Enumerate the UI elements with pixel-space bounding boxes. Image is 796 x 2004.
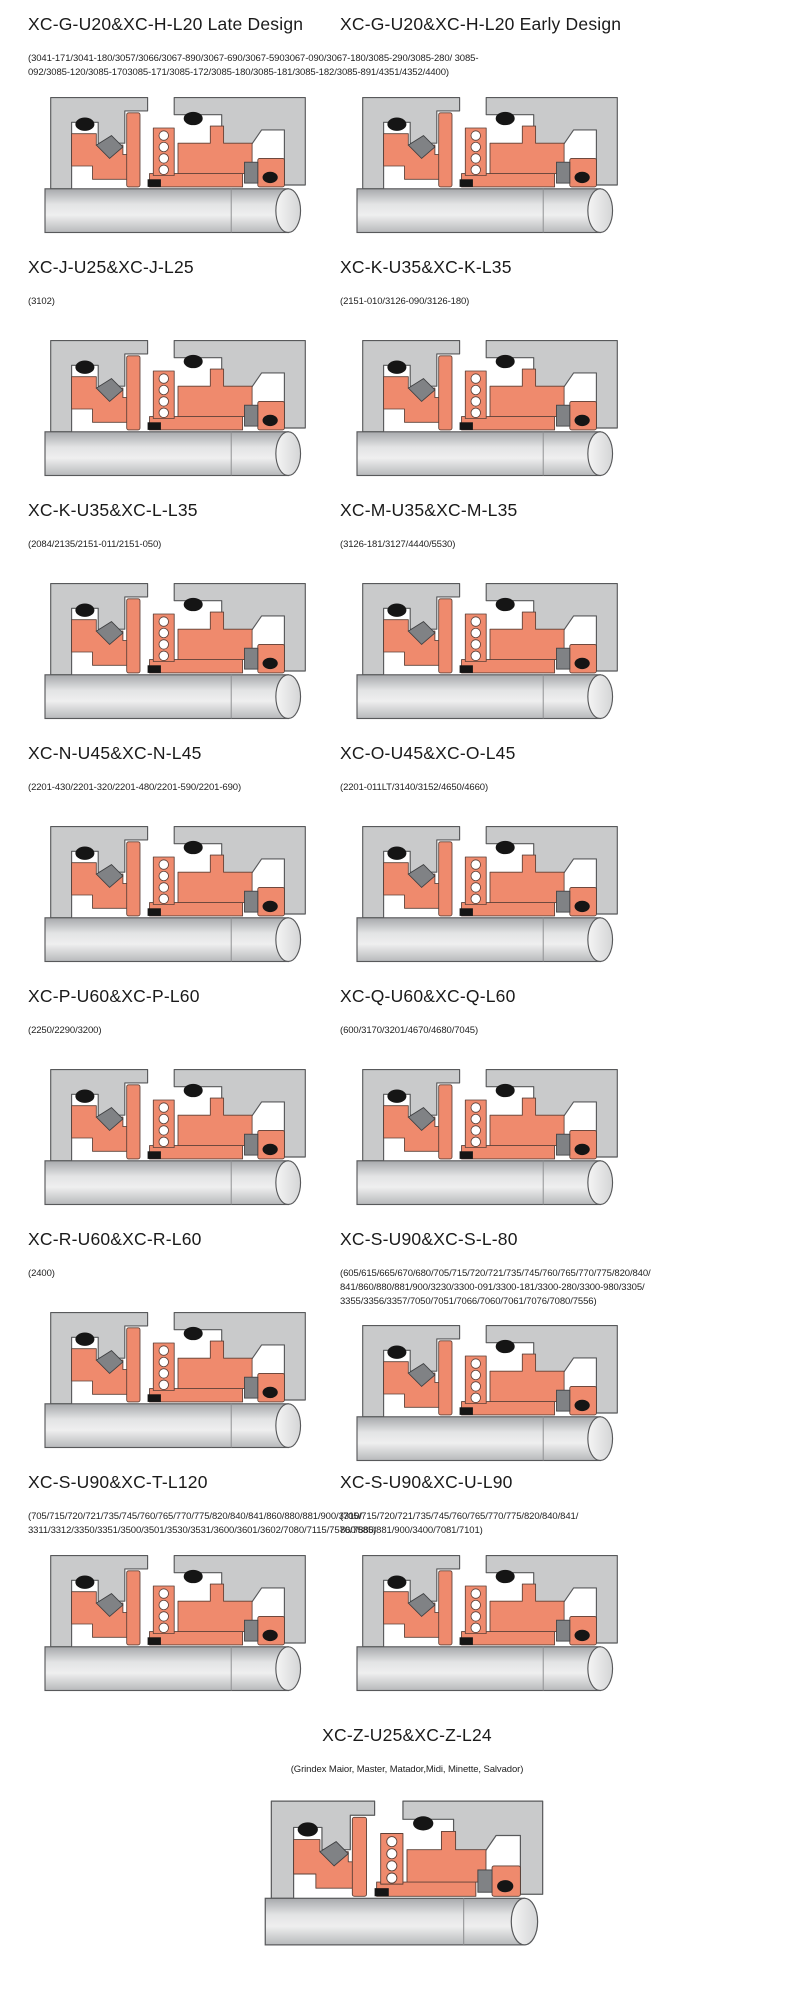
seal-section-g-h-late: XC-G-U20&XC-H-L20 Late Design (3041-171/…: [28, 14, 340, 257]
mechanical-seal-cross-section-diagram: [34, 333, 322, 485]
seal-section-k: XC-K-U35&XC-K-L35 (2151-010/3126-090/312…: [340, 257, 786, 500]
seal-title: XC-G-U20&XC-H-L20 Late Design: [28, 14, 340, 35]
seal-part-numbers: (3102): [28, 295, 340, 323]
seal-section-j: XC-J-U25&XC-J-L25 (3102): [28, 257, 340, 500]
seal-title: XC-S-U90&XC-S-L-80: [340, 1229, 786, 1250]
seal-section-t-l120: XC-S-U90&XC-T-L120 (705/715/720/721/735/…: [28, 1472, 340, 1715]
seal-title: XC-M-U35&XC-M-L35: [340, 500, 786, 521]
seal-section-g-h-early: XC-G-U20&XC-H-L20 Early Design: [340, 14, 786, 257]
seal-part-numbers: (2201-011LT/3140/3152/4650/4660): [340, 781, 685, 809]
mechanical-seal-cross-section-diagram: [255, 1793, 559, 1955]
seal-title: XC-P-U60&XC-P-L60: [28, 986, 340, 1007]
mechanical-seal-cross-section-diagram: [34, 1062, 322, 1214]
seal-section-z: XC-Z-U25&XC-Z-L24 (Grindex Maior, Master…: [28, 1715, 786, 1955]
seal-title: XC-N-U45&XC-N-L45: [28, 743, 340, 764]
mechanical-seal-cross-section-diagram: [346, 333, 634, 485]
seal-title: XC-S-U90&XC-T-L120: [28, 1472, 340, 1493]
seal-title: XC-Q-U60&XC-Q-L60: [340, 986, 786, 1007]
seal-part-numbers: (2250/2290/3200): [28, 1024, 340, 1052]
mechanical-seal-cross-section-diagram: [346, 1318, 634, 1470]
seal-part-numbers: (2201-430/2201-320/2201-480/2201-590/220…: [28, 781, 340, 809]
mechanical-seal-cross-section-diagram: [346, 819, 634, 971]
seal-part-numbers: (3041-171/3041-180/3057/3066/3067-890/30…: [28, 52, 484, 80]
seal-part-numbers: (2084/2135/2151-011/2151-050): [28, 538, 340, 566]
seal-part-numbers: (705/715/720/721/735/745/760/765/770/775…: [28, 1510, 430, 1538]
seal-section-n: XC-N-U45&XC-N-L45 (2201-430/2201-320/220…: [28, 743, 340, 986]
seal-title: XC-J-U25&XC-J-L25: [28, 257, 340, 278]
seal-catalog-page: XC-G-U20&XC-H-L20 Late Design (3041-171/…: [0, 0, 796, 1979]
mechanical-seal-cross-section-diagram: [34, 576, 322, 728]
mechanical-seal-cross-section-diagram: [346, 576, 634, 728]
seal-section-s-l80: XC-S-U90&XC-S-L-80 (605/615/665/670/680/…: [340, 1229, 786, 1472]
seal-section-m: XC-M-U35&XC-M-L35 (3126-181/3127/4440/55…: [340, 500, 786, 743]
seal-part-numbers: (605/615/665/670/680/705/715/720/721/735…: [340, 1267, 685, 1308]
seal-title: XC-G-U20&XC-H-L20 Early Design: [340, 14, 786, 35]
seal-section-q: XC-Q-U60&XC-Q-L60 (600/3170/3201/4670/46…: [340, 986, 786, 1229]
mechanical-seal-cross-section-diagram: [34, 819, 322, 971]
seal-part-numbers: (2400): [28, 1267, 340, 1295]
mechanical-seal-cross-section-diagram: [34, 1548, 322, 1700]
mechanical-seal-cross-section-diagram: [34, 1305, 322, 1457]
seal-title: XC-K-U35&XC-L-L35: [28, 500, 340, 521]
seal-title: XC-Z-U25&XC-Z-L24: [28, 1725, 786, 1746]
mechanical-seal-cross-section-diagram: [346, 1548, 634, 1700]
seal-title: XC-R-U60&XC-R-L60: [28, 1229, 340, 1250]
seal-section-r: XC-R-U60&XC-R-L60 (2400): [28, 1229, 340, 1472]
seal-section-o: XC-O-U45&XC-O-L45 (2201-011LT/3140/3152/…: [340, 743, 786, 986]
seal-part-numbers: (2151-010/3126-090/3126-180): [340, 295, 685, 323]
seal-title: XC-K-U35&XC-K-L35: [340, 257, 786, 278]
seal-section-k-l: XC-K-U35&XC-L-L35 (2084/2135/2151-011/21…: [28, 500, 340, 743]
seal-title: XC-O-U45&XC-O-L45: [340, 743, 786, 764]
seal-section-u-l90: XC-S-U90&XC-U-L90 (705/715/720/721/735/7…: [340, 1472, 786, 1715]
mechanical-seal-cross-section-diagram: [346, 90, 634, 242]
seal-part-numbers: (Grindex Maior, Master, Matador,Midi, Mi…: [28, 1763, 786, 1779]
seal-title: XC-S-U90&XC-U-L90: [340, 1472, 786, 1493]
mechanical-seal-cross-section-diagram: [34, 90, 322, 242]
seal-section-p: XC-P-U60&XC-P-L60 (2250/2290/3200): [28, 986, 340, 1229]
seal-part-numbers: (3126-181/3127/4440/5530): [340, 538, 685, 566]
seal-part-numbers: (600/3170/3201/4670/4680/7045): [340, 1024, 685, 1052]
mechanical-seal-cross-section-diagram: [346, 1062, 634, 1214]
